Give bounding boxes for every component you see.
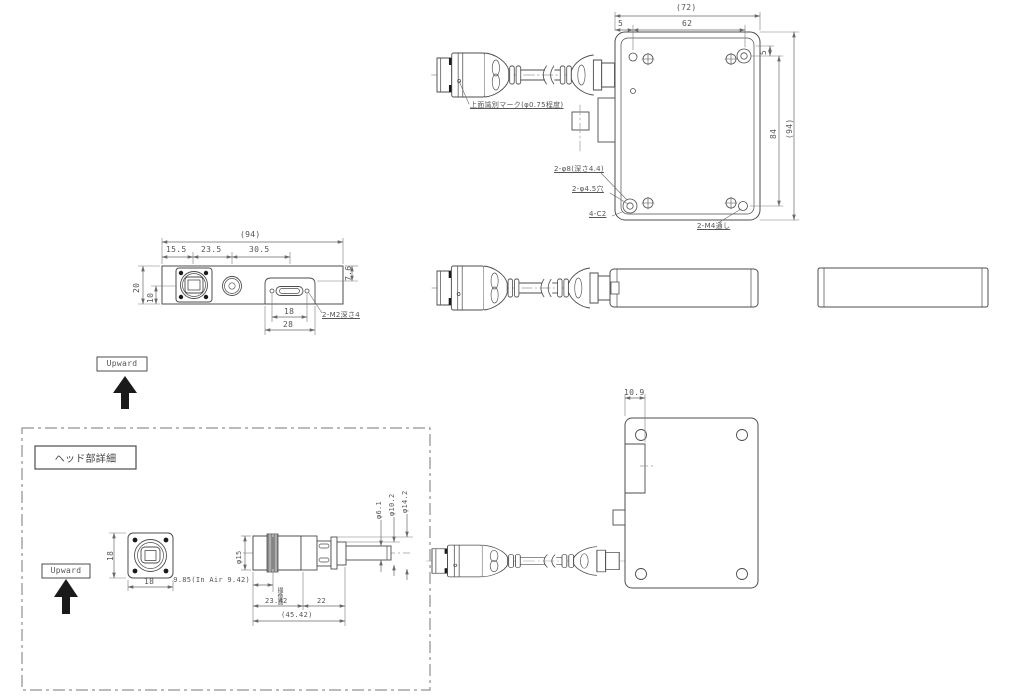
note-chamfer: 4-C2: [589, 210, 607, 218]
cad-drawing-sheet: (72) 5 62 5 84 (94) 上面識別マーク(φ0.75程度) 2-φ…: [0, 0, 1030, 700]
note-id-mark: 上面識別マーク(φ0.75程度): [470, 100, 563, 110]
dim-head-len2: 22: [317, 597, 326, 605]
dim-front-step: 7.6: [344, 266, 353, 281]
dim-top-overall-height: (94): [785, 119, 794, 139]
dim-front-seg3: 30.5: [249, 245, 269, 254]
dim-front-seg1: 15.5: [166, 245, 186, 254]
controller-side-outline: [610, 269, 758, 307]
detail-title: ヘッド部詳細: [38, 450, 133, 465]
controller-bottom-outline: [625, 418, 758, 588]
dim-head-width: 18: [144, 577, 154, 586]
dim-head-overall: (45.42): [281, 611, 313, 619]
note-counterbore: 2-φ8(深さ4.4): [554, 164, 604, 174]
note-thread-m2: 2-M2深さ4: [322, 310, 360, 320]
side-view-cable: [432, 266, 758, 310]
dim-front-conn-pitch: 18: [284, 307, 294, 316]
dim-flange-depth: 9.85(In Air 9.42): [168, 576, 250, 584]
top-view: [431, 12, 799, 223]
dia-ring-label: φ14.2: [401, 490, 409, 513]
dim-front-boss-width: 28: [283, 320, 293, 329]
dim-front-center: 10: [146, 293, 155, 303]
dim-head-height: 18: [106, 551, 115, 561]
dim-head-len1: 23.42: [265, 597, 288, 605]
dim-front-seg2: 23.5: [201, 245, 221, 254]
note-through-hole: 2-φ4.5穴: [572, 184, 604, 194]
dim-bottom-block: 10.9: [624, 388, 644, 397]
dia-collar-label: φ10.2: [388, 493, 396, 516]
side-view-plain: [818, 268, 988, 307]
dia-body-label: φ15: [235, 550, 243, 564]
dim-top-overall-width: (72): [676, 3, 696, 12]
upward-label-1: Upward: [98, 359, 146, 368]
dim-top-edge-v: 5: [759, 50, 768, 55]
dim-front-height: 20: [132, 283, 141, 293]
note-thread-m4: 2-M4通し: [697, 221, 730, 231]
dim-top-edge: 5: [618, 19, 623, 28]
dim-top-pitch-h: 84: [769, 129, 778, 139]
dim-front-overall: (94): [240, 230, 260, 239]
dim-top-pitch-w: 62: [682, 19, 692, 28]
head-detail-box: [22, 428, 430, 690]
dia-tube-label: φ6.1: [375, 501, 383, 519]
upward-label-2: Upward: [43, 566, 89, 575]
bottom-view: [426, 394, 758, 588]
